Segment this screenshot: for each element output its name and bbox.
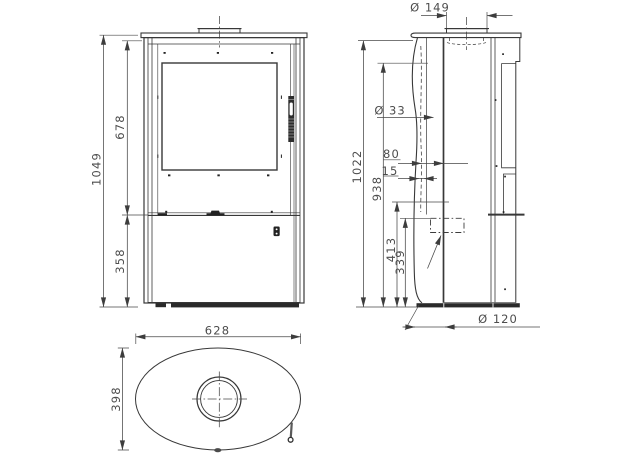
top-front-hinge xyxy=(214,448,221,452)
technical-drawing: 1049 678 358 xyxy=(0,0,624,460)
hidden-intake-stub xyxy=(428,218,465,268)
drawing-canvas: 1049 678 358 xyxy=(0,0,624,460)
side-dimensions: Ø 149 1022 938 Ø 33 80 15 xyxy=(350,1,540,330)
dim-intake-height: 339 xyxy=(393,249,407,275)
front-dimensions: 1049 678 358 xyxy=(90,35,149,307)
front-door-window xyxy=(157,52,294,176)
dim-top-depth: 398 xyxy=(109,386,123,412)
front-view-outline xyxy=(141,16,307,303)
screw-dots xyxy=(157,52,282,176)
dim-top-offset: 80 xyxy=(383,147,400,161)
front-view: 1049 678 358 xyxy=(90,16,308,307)
dim-front-upper-section: 678 xyxy=(113,114,127,140)
ash-door-latch xyxy=(274,227,280,237)
dim-floor-intake-diameter: Ø 120 xyxy=(478,312,518,326)
stub-leader xyxy=(428,236,442,269)
glass-window xyxy=(162,63,277,170)
side-view-outline xyxy=(411,17,525,307)
dim-side-total-height: 1022 xyxy=(350,149,364,183)
side-front-contour xyxy=(412,38,422,303)
door-handle xyxy=(288,96,294,142)
top-view: 628 398 xyxy=(109,324,301,453)
back-panel-edge xyxy=(516,38,520,303)
back-panel-screws xyxy=(495,53,506,290)
side-view: Ø 149 1022 938 Ø 33 80 15 xyxy=(350,1,540,330)
dim-front-total-height: 1049 xyxy=(90,152,104,186)
dim-top-width: 628 xyxy=(205,324,231,338)
front-divider xyxy=(148,211,300,216)
top-body-ellipse xyxy=(136,348,301,450)
dim-rear-outlet-diameter: Ø 33 xyxy=(374,104,405,118)
dim-flue-diameter: Ø 149 xyxy=(410,1,450,15)
side-hidden-contour xyxy=(421,46,422,212)
dim-rear-outlet-height: 938 xyxy=(370,176,384,202)
dim-front-lower-section: 358 xyxy=(113,248,127,274)
